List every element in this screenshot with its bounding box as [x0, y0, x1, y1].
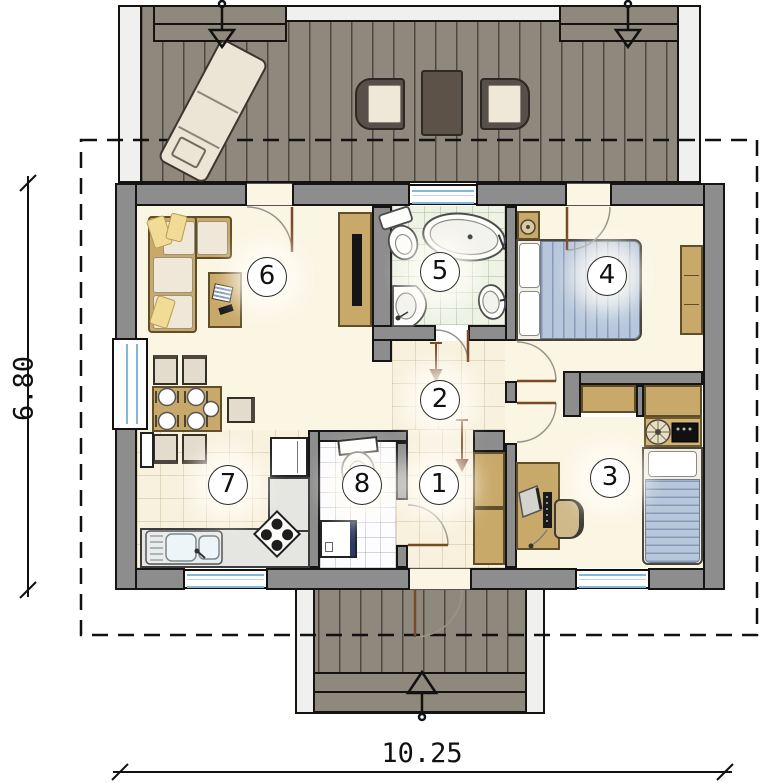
hall-closet-a	[473, 452, 505, 508]
dining-chair-5	[227, 397, 255, 423]
bed-single-pillow	[648, 451, 697, 477]
room-1-number: 1	[431, 469, 448, 499]
room-label-8: 8	[342, 465, 382, 505]
wall-wc-east-a	[396, 442, 408, 500]
room-2-number: 2	[432, 384, 449, 414]
terrace-door-living-opening	[247, 183, 292, 206]
wall-bottom-b	[266, 568, 410, 590]
bed-double-duvet	[540, 241, 640, 339]
kitchen-tall-cabinet	[140, 432, 154, 468]
kitchen-counter-right	[268, 477, 310, 532]
wall-hall-closet-stub	[473, 430, 505, 452]
sun-lounger-towel	[170, 136, 207, 170]
wall-wc-east-b	[396, 545, 408, 568]
wardrobe-divider-1	[684, 275, 699, 276]
fridge	[270, 437, 308, 477]
room-3-number: 3	[602, 462, 619, 492]
bedroom3-closet-a	[581, 385, 636, 413]
entry-door-opening	[410, 568, 470, 590]
sun-lounger-seam	[197, 90, 239, 113]
porch-step-2	[313, 691, 527, 713]
porch-fascia-right	[525, 588, 545, 714]
wall-bottom-c	[470, 568, 577, 590]
wall-bedroom-divider-stub	[563, 371, 581, 417]
terrace-steps-right-2	[559, 23, 679, 42]
desk-chair	[554, 499, 584, 539]
bathroom-window	[408, 184, 478, 205]
room-label-7: 7	[208, 465, 248, 505]
kitchen-window	[183, 569, 268, 589]
room-label-3: 3	[590, 458, 630, 498]
bedroom-doors-lobby-floor	[517, 371, 563, 417]
deck-armchair-left-cushion	[368, 85, 401, 123]
bedroom-3-doorway	[505, 403, 517, 443]
sofa-cushion-3	[153, 257, 193, 293]
tv-screen	[352, 234, 362, 306]
terrace-fascia-right	[677, 5, 701, 183]
room-5-number: 5	[432, 256, 449, 286]
room-label-2: 2	[420, 380, 460, 420]
wall-top-c	[476, 183, 567, 206]
wall-bath-south-a	[372, 325, 436, 341]
bedroom3-closet-b	[644, 385, 702, 417]
washing-machine	[320, 520, 357, 558]
living-room-window	[112, 338, 148, 430]
bedroom-4-doorway	[505, 341, 517, 381]
room-7-number: 7	[220, 469, 237, 499]
deck-armchair-left	[355, 78, 405, 130]
deck-coffee-table	[421, 70, 463, 136]
wall-closet-divider	[636, 385, 644, 417]
wall-top-b	[292, 183, 410, 206]
bedroom3-shelf	[644, 417, 702, 447]
bedroom4-nightstand	[517, 211, 540, 240]
bedroom-3-window	[575, 569, 650, 589]
terrace-door-bedroom4-opening	[567, 183, 610, 206]
room-label-4: 4	[587, 256, 627, 296]
dimension-width-label: 10.25	[352, 738, 492, 769]
bed-double-pillow-1	[519, 243, 540, 288]
deck-armchair-right-cushion	[488, 85, 521, 123]
room-4-number: 4	[599, 260, 616, 290]
fridge-door-line	[297, 441, 298, 473]
hall-closet-b	[473, 508, 505, 565]
dining-chair-2	[182, 355, 207, 385]
bed-single-duvet	[645, 479, 700, 563]
terrace-steps-left	[153, 5, 287, 25]
wall-left-upper	[115, 183, 137, 340]
wall-bedroom-divider	[563, 371, 703, 385]
bed-double-pillow-2	[519, 291, 540, 336]
dining-chair-1	[153, 355, 178, 385]
bedroom4-wardrobe	[680, 245, 703, 335]
terrace-edge-band	[285, 5, 561, 22]
washing-machine-panel	[350, 522, 355, 556]
porch-fascia-left	[295, 588, 315, 714]
room-label-1: 1	[419, 465, 459, 505]
wc-doorway	[396, 500, 408, 545]
room-label-5: 5	[420, 252, 460, 292]
dimension-height-label: 6.80	[9, 339, 40, 439]
room-6-number: 6	[259, 261, 276, 291]
wall-right	[703, 183, 725, 590]
floor-plan-canvas: 1 2 3 4 5 6 7 8 6.80 10.25	[0, 0, 768, 783]
terrace-steps-left-2	[153, 23, 287, 42]
deck-armchair-right	[480, 78, 530, 130]
porch-step-1	[313, 672, 527, 693]
washing-machine-door	[325, 542, 333, 552]
dining-chair-4	[182, 434, 207, 464]
sofa-cushion-2	[197, 221, 228, 255]
wall-left-lower	[115, 428, 137, 590]
room-label-6: 6	[247, 257, 287, 297]
terrace-steps-right	[559, 5, 679, 25]
kitchen-counter-bottom	[140, 528, 310, 568]
wardrobe-divider-2	[684, 304, 699, 305]
room-8-number: 8	[354, 469, 371, 499]
wall-door-stub	[505, 381, 517, 403]
dining-chair-3	[153, 434, 178, 464]
dining-table	[152, 386, 222, 432]
terrace-fascia-left	[118, 5, 142, 183]
